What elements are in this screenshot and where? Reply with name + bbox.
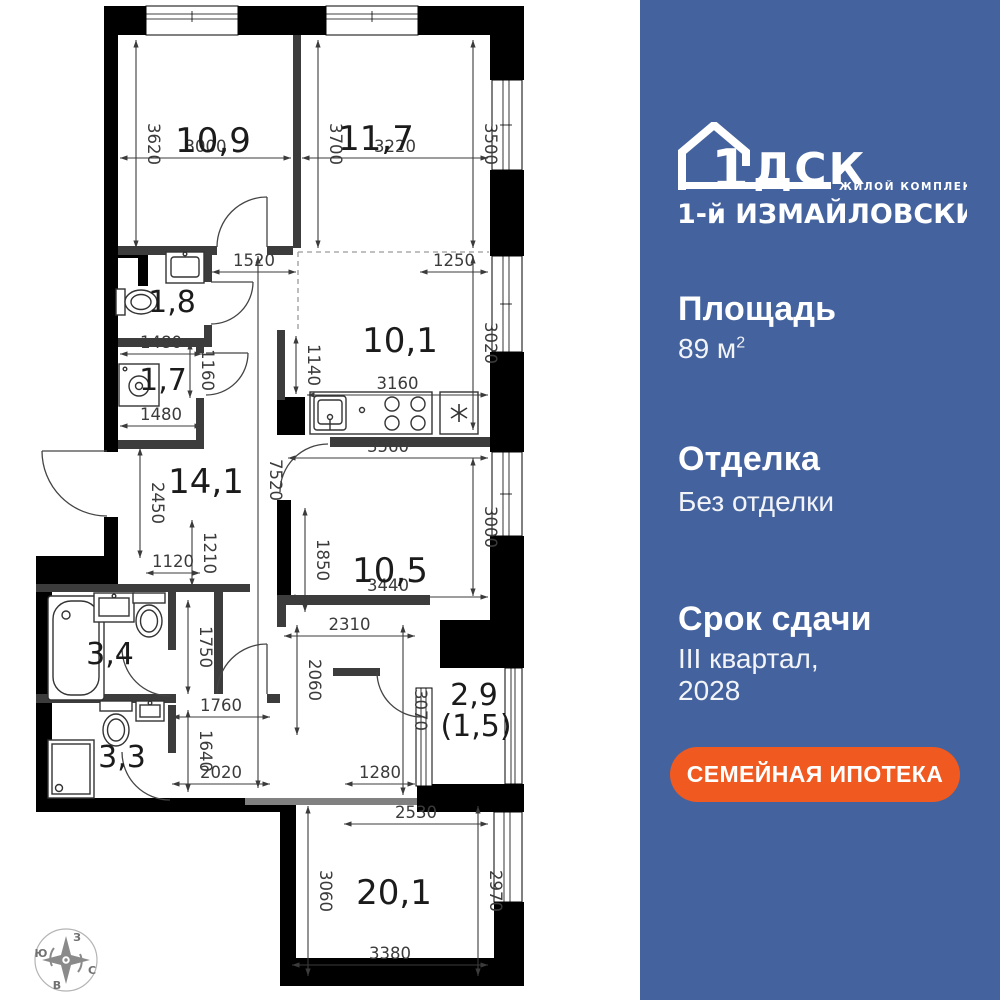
info-panel: 1 ДСК ЖИЛОЙ КОМПЛЕКС 1-й ИЗМАЙЛОВСКИЙ Пл… <box>640 0 1000 1000</box>
dimension-label: 3380 <box>369 944 411 963</box>
listing-card: 3000322015201250148014803160356011203440… <box>0 0 1000 1000</box>
kitchen-sink-icon <box>314 396 346 430</box>
dimension-label: 1480 <box>140 333 182 352</box>
washbasin-icon <box>166 252 204 283</box>
railings <box>245 798 417 805</box>
shower-icon <box>48 740 94 798</box>
finishing-value: Без отделки <box>678 486 834 518</box>
drop-icon <box>360 408 365 413</box>
dimension-label: 3070 <box>411 689 430 731</box>
fridge-icon <box>440 392 478 434</box>
logo-underline <box>679 182 831 189</box>
room-area-label: 1,7 <box>139 363 187 398</box>
room-area-label: 10,1 <box>362 321 438 361</box>
room-area-label: 2,9 <box>450 678 498 713</box>
dimension-label: 3060 <box>316 870 335 912</box>
dimension-label: 1250 <box>433 251 475 270</box>
sink-3-3-icon <box>136 701 164 721</box>
floor-plan-area: 3000322015201250148014803160356011203440… <box>0 0 640 1000</box>
window-top-right-icon <box>326 6 418 35</box>
dimension-label: 1160 <box>198 349 217 391</box>
floor-plan: 3000322015201250148014803160356011203440… <box>0 0 640 1000</box>
dimension-label: 1850 <box>313 539 332 581</box>
deadline-value-line2: 2028 <box>678 675 740 707</box>
dimension-label: 1210 <box>200 532 219 574</box>
dimension-label: 3020 <box>481 322 500 364</box>
room-area-label: 14,1 <box>168 462 244 502</box>
dimension-label: 3560 <box>367 437 409 456</box>
dimension-label: 2060 <box>305 659 324 701</box>
deadline-value-line1: III квартал, <box>678 643 819 675</box>
finishing-label: Отделка <box>678 440 820 479</box>
compass-icon: ЗЮСВ <box>35 929 97 992</box>
deadline-label: Срок сдачи <box>678 600 872 639</box>
brand-logo: 1 ДСК ЖИЛОЙ КОМПЛЕКС 1-й ИЗМАЙЛОВСКИЙ <box>677 122 967 238</box>
room-area-label: 20,1 <box>356 873 432 913</box>
area-label: Площадь <box>678 290 836 329</box>
dimension-label: 1280 <box>359 763 401 782</box>
family-mortgage-button[interactable]: СЕМЕЙНАЯ ИПОТЕКА <box>670 747 960 802</box>
dimension-label: 7520 <box>266 459 285 501</box>
dimension-label: 3500 <box>481 123 500 165</box>
logo-number: 1 <box>711 138 749 201</box>
compass-letter: В <box>53 979 61 992</box>
dimension-label: 1520 <box>233 251 275 270</box>
dimension-label: 3000 <box>481 506 500 548</box>
complex-name: 1-й ИЗМАЙЛОВСКИЙ <box>677 198 967 230</box>
room-area-label: 1,8 <box>148 285 196 320</box>
dimension-label: 1480 <box>140 405 182 424</box>
room-area-label: 10,9 <box>175 121 251 161</box>
sink-3-4-icon <box>94 593 134 622</box>
dimension-label: 1760 <box>200 696 242 715</box>
dimension-label: 2310 <box>329 615 371 634</box>
room-area-label: 3,4 <box>86 637 134 672</box>
room-area-label: 3,3 <box>98 740 146 775</box>
dimension-label: 2450 <box>148 482 167 524</box>
dimension-label: 1750 <box>196 626 215 668</box>
room-area-label: 11,7 <box>338 119 414 159</box>
compass-letter: Ю <box>35 947 48 960</box>
logo-tagline: ЖИЛОЙ КОМПЛЕКС <box>839 180 967 193</box>
dimension-label: 2970 <box>486 870 505 912</box>
toilet-3-4-icon <box>133 593 165 637</box>
dimension-label: 1640 <box>196 730 215 772</box>
dimension-label: 3160 <box>377 374 419 393</box>
dimension-label: 3620 <box>144 123 163 165</box>
room-area-label: (1,5) <box>440 709 511 744</box>
compass-letter: С <box>88 964 96 977</box>
dimension-label: 1140 <box>304 344 323 386</box>
dimension-label: 1120 <box>152 552 194 571</box>
window-top-left-icon <box>146 6 238 35</box>
area-value: 89 м2 <box>678 333 745 365</box>
plan-background <box>0 0 640 1000</box>
dimension-label: 2530 <box>395 803 437 822</box>
room-area-label: 10,5 <box>352 551 428 591</box>
compass-letter: З <box>73 931 81 944</box>
